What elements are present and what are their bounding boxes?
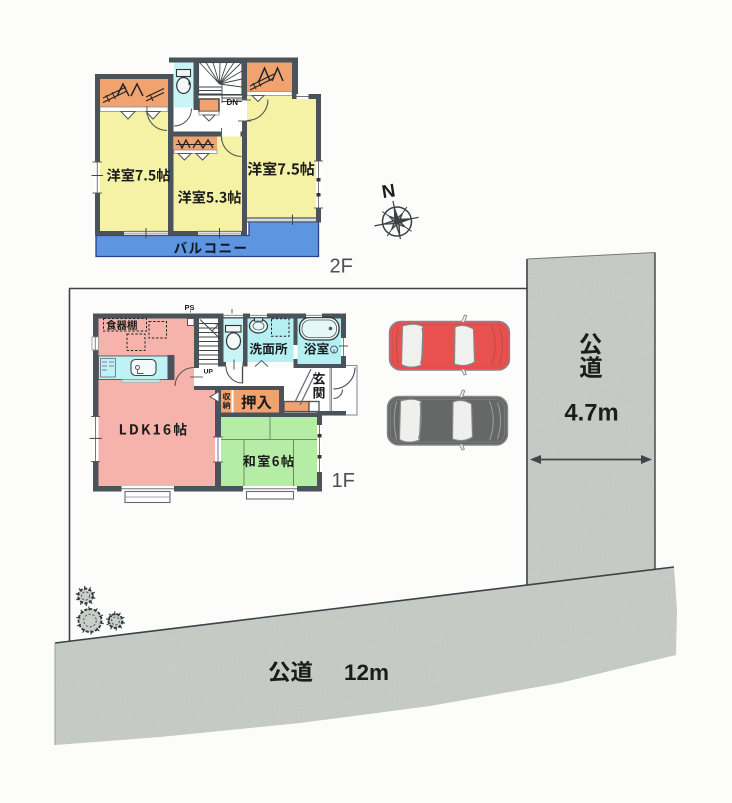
svg-text:PS: PS bbox=[185, 303, 195, 312]
svg-text:12m: 12m bbox=[344, 660, 389, 685]
svg-text:2F: 2F bbox=[330, 256, 353, 278]
svg-text:1F: 1F bbox=[332, 470, 355, 492]
svg-text:DN: DN bbox=[227, 98, 239, 107]
svg-text:4.7m: 4.7m bbox=[564, 400, 618, 427]
svg-text:UP: UP bbox=[204, 369, 214, 376]
